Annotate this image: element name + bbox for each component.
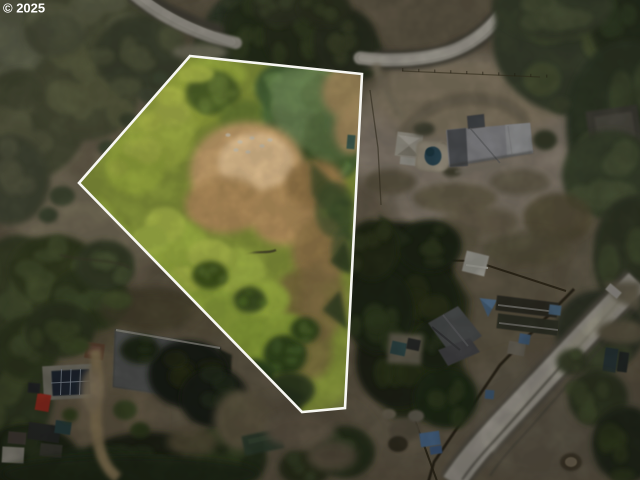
svg-text:© 2025: © 2025 [3, 1, 45, 16]
